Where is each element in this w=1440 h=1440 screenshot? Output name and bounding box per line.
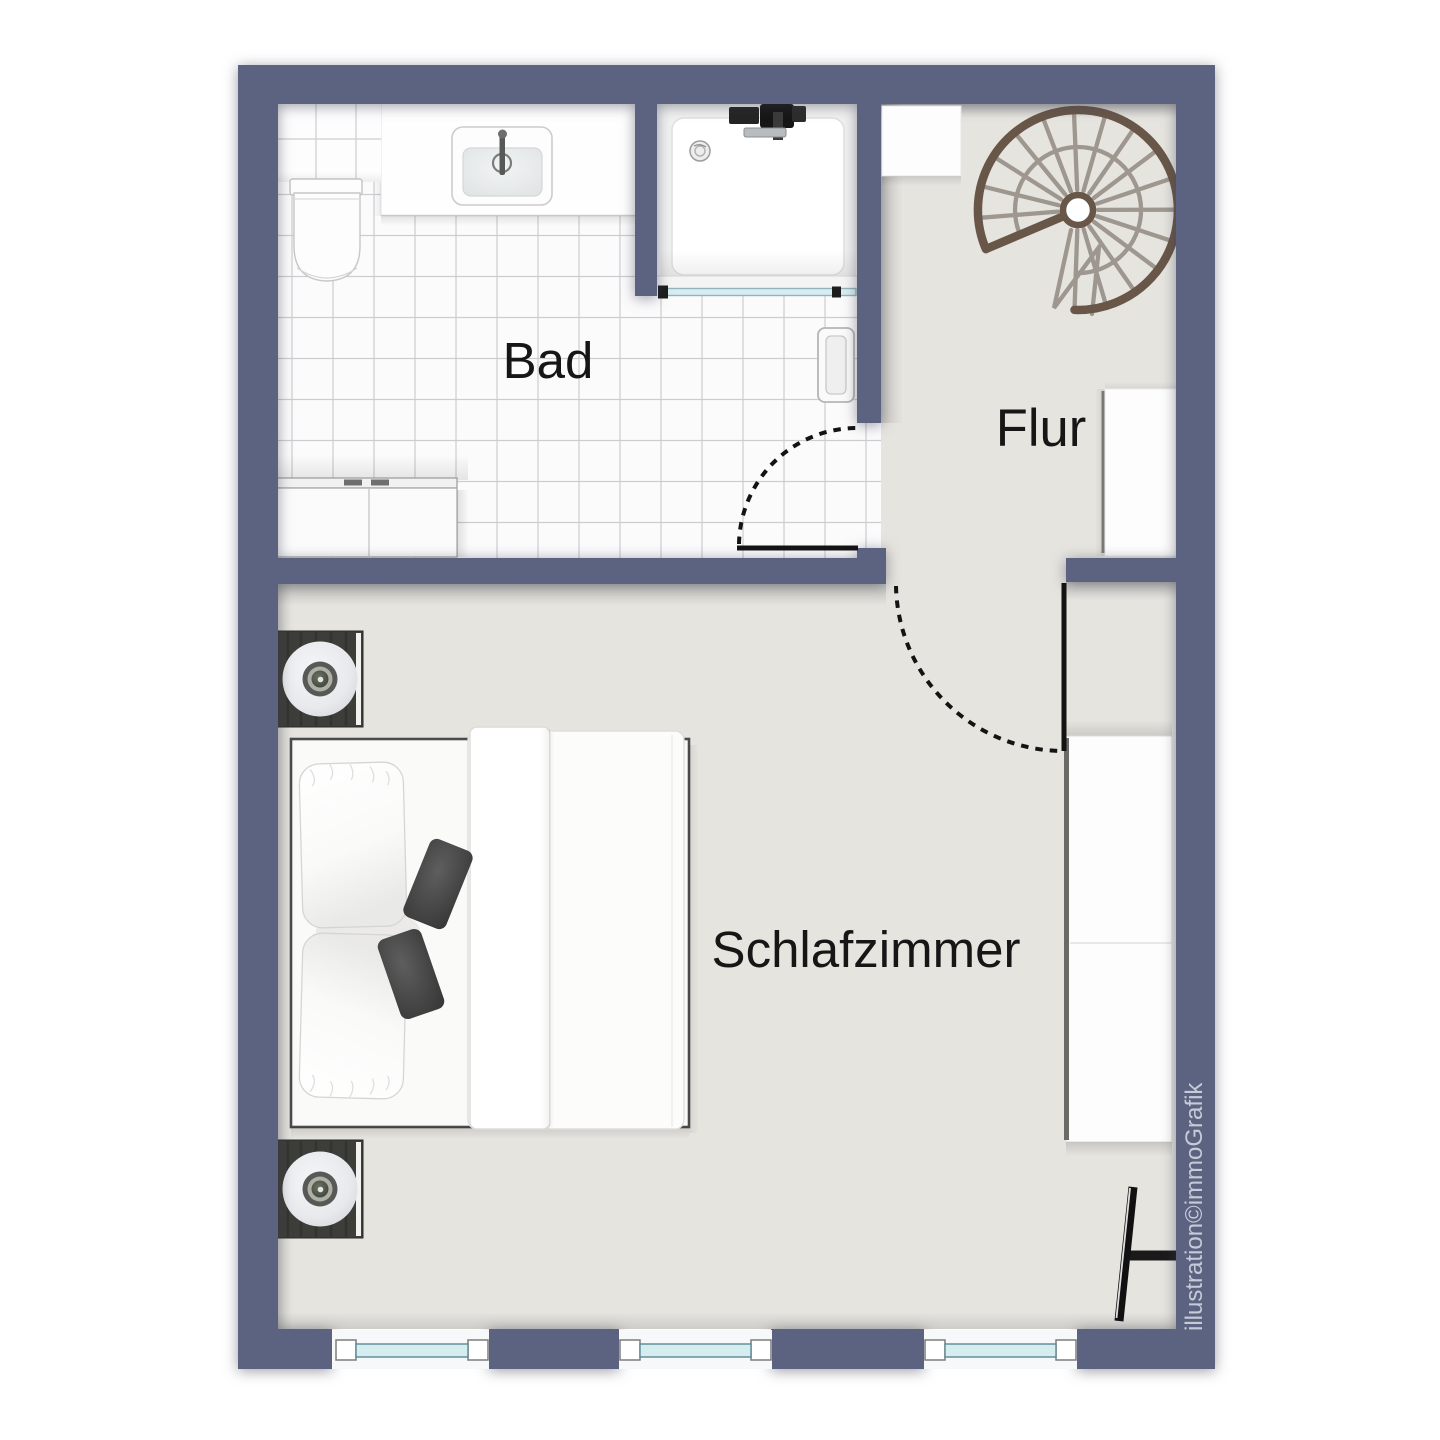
svg-text:Schlafzimmer: Schlafzimmer — [712, 921, 1021, 978]
svg-text:Flur: Flur — [996, 399, 1086, 458]
svg-text:illustration©immoGrafik: illustration©immoGrafik — [1181, 1082, 1208, 1331]
svg-text:Bad: Bad — [503, 332, 594, 389]
